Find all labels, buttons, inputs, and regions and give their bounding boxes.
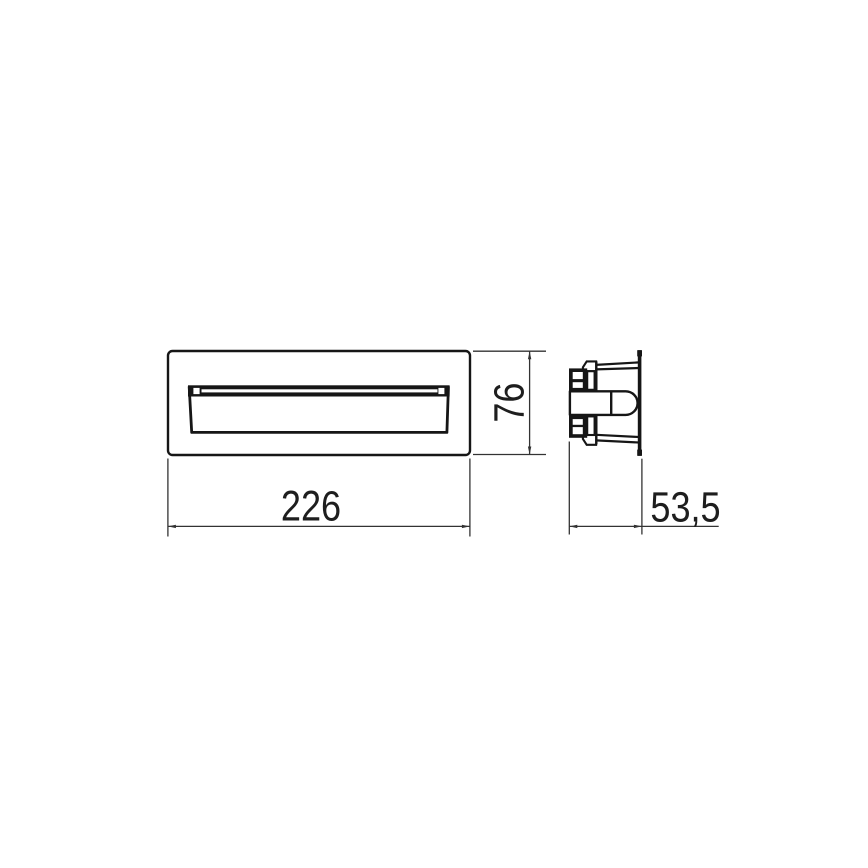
svg-text:53,5: 53,5 <box>650 483 720 531</box>
svg-text:226: 226 <box>281 482 341 530</box>
svg-text:76: 76 <box>486 383 534 423</box>
